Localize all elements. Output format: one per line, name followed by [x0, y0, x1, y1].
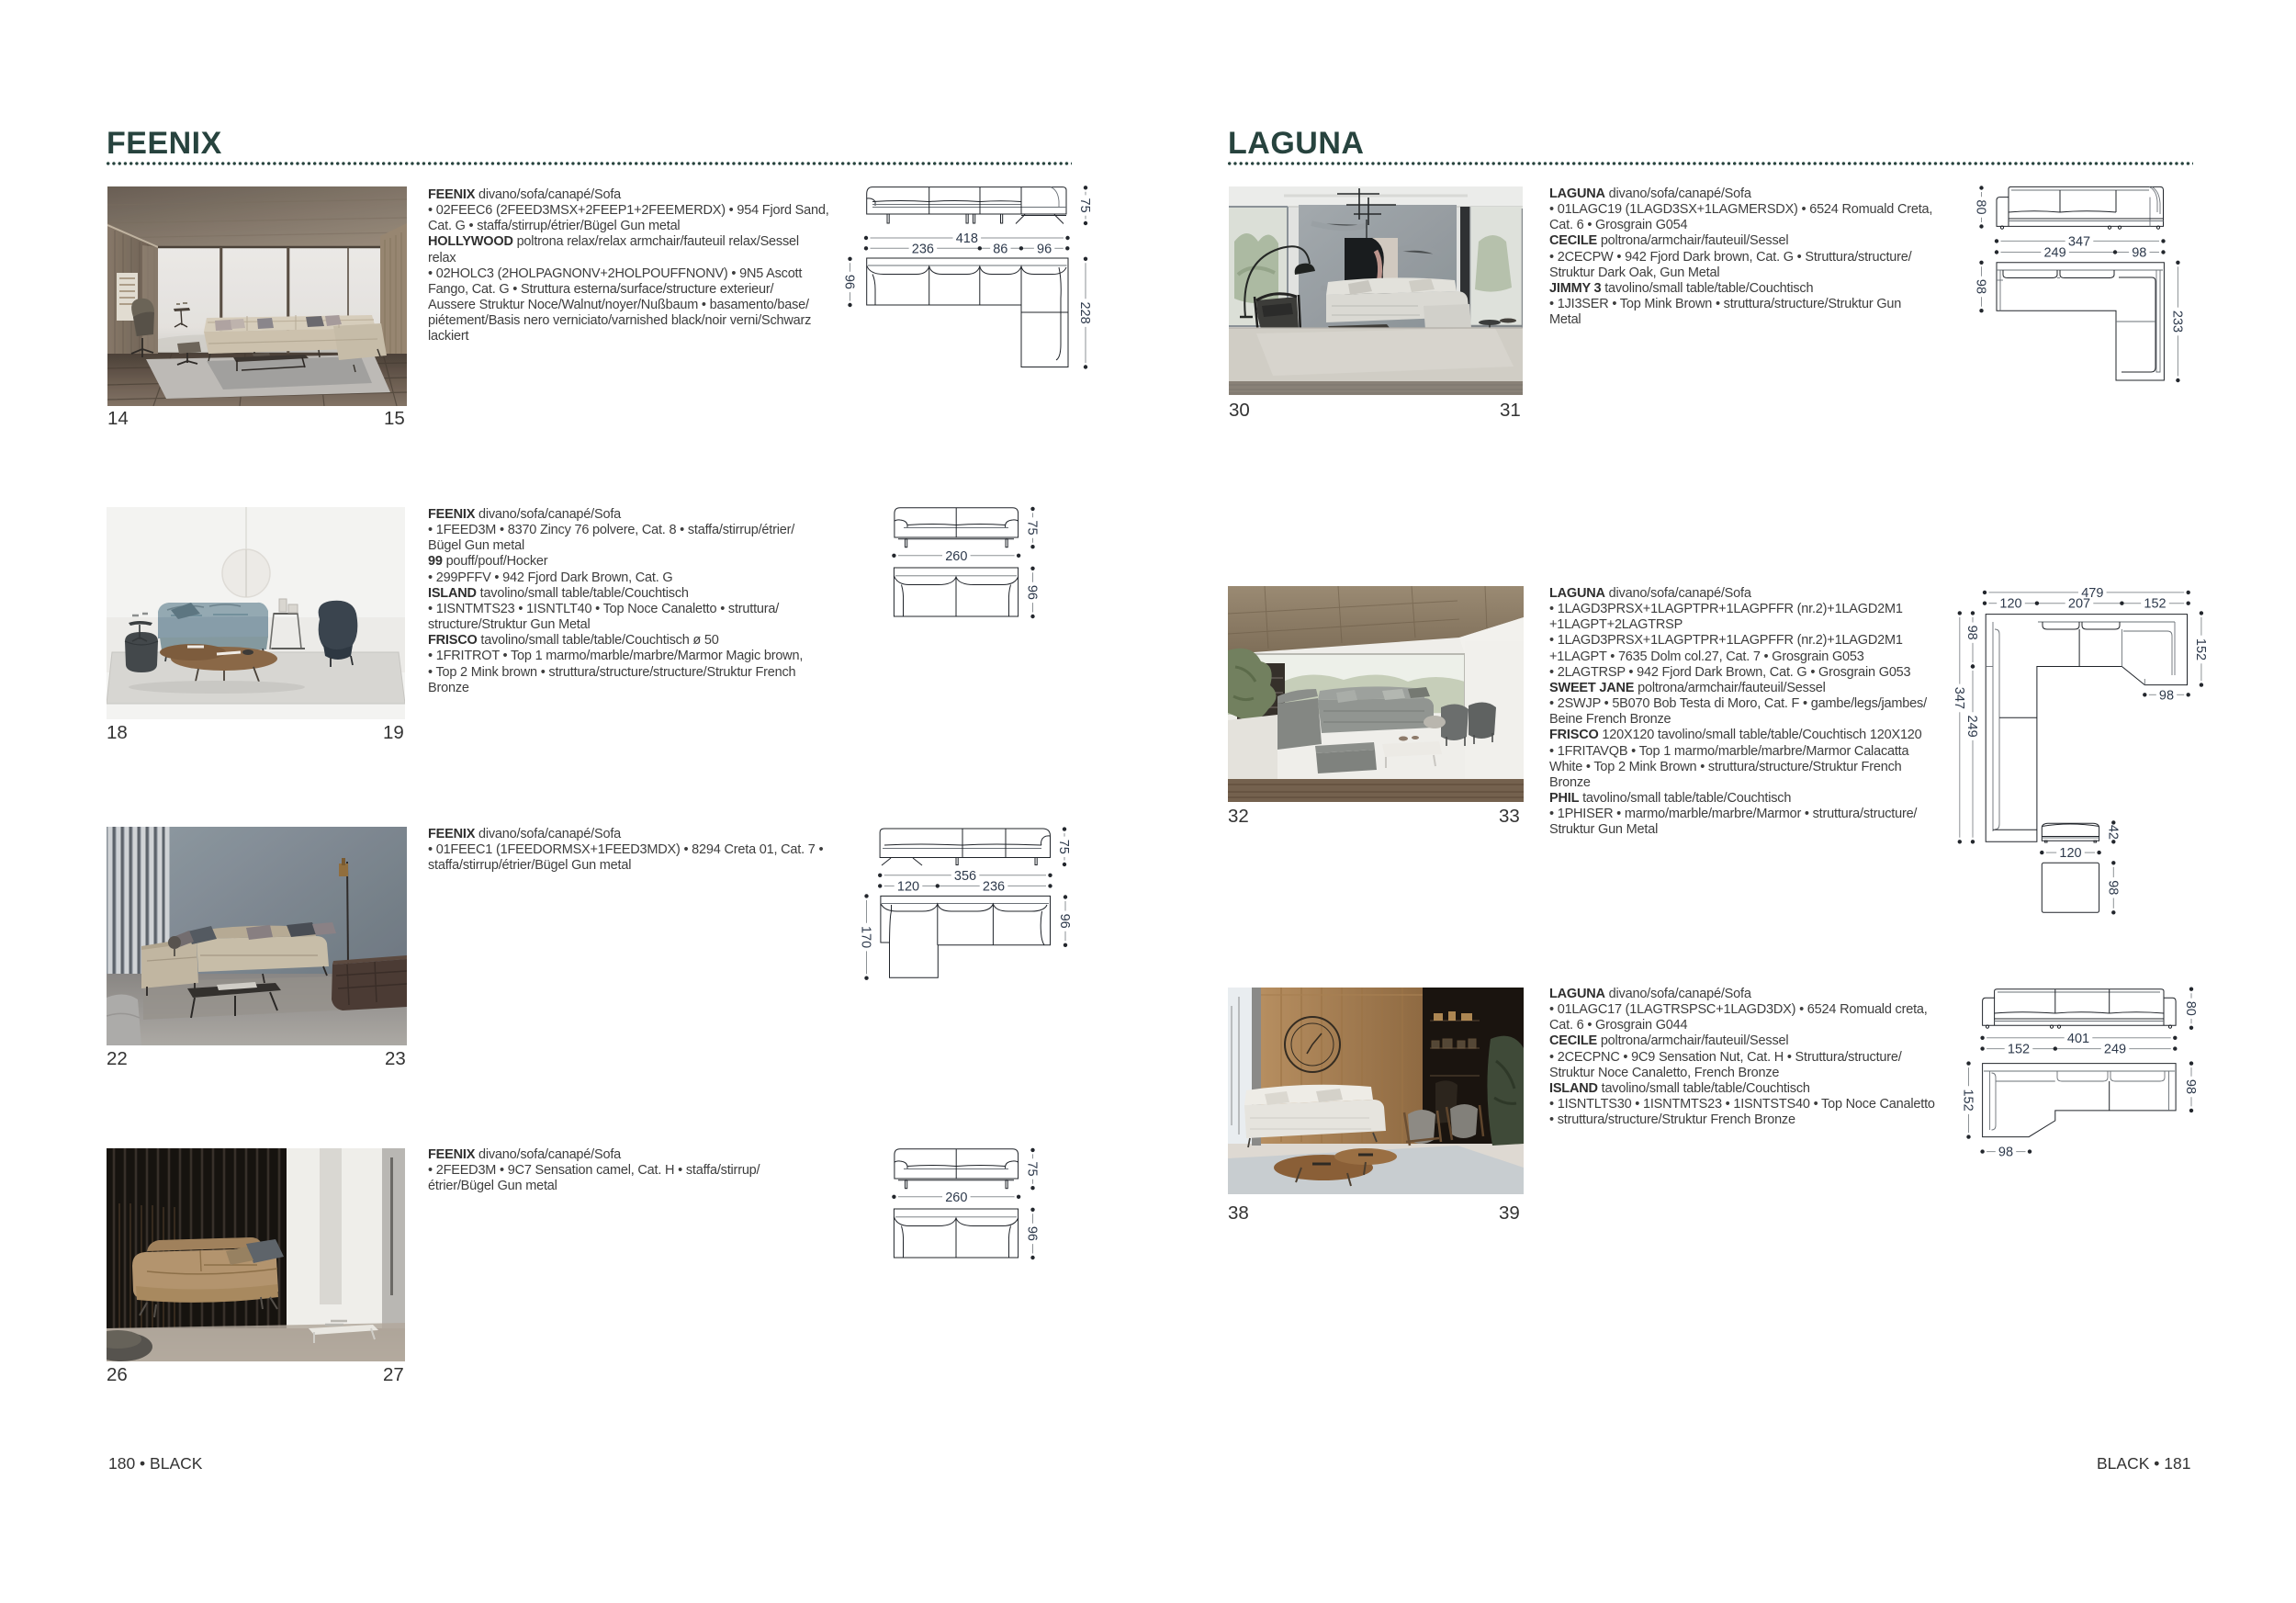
- svg-text:80: 80: [1974, 199, 1988, 214]
- svg-text:236: 236: [983, 879, 1005, 894]
- svg-text:152: 152: [2144, 597, 2166, 612]
- svg-text:75: 75: [1025, 520, 1040, 535]
- svg-text:98: 98: [2132, 246, 2146, 261]
- svg-text:80: 80: [2183, 1001, 2198, 1016]
- svg-text:120: 120: [1999, 597, 2021, 612]
- svg-text:260: 260: [945, 1191, 967, 1205]
- svg-text:249: 249: [2043, 246, 2065, 261]
- svg-text:98: 98: [2183, 1079, 2198, 1094]
- svg-text:347: 347: [1952, 687, 1966, 709]
- svg-text:86: 86: [993, 242, 1007, 256]
- svg-text:356: 356: [954, 869, 976, 884]
- svg-text:96: 96: [1025, 1226, 1040, 1241]
- svg-text:233: 233: [2170, 310, 2185, 333]
- svg-text:228: 228: [1077, 301, 1092, 323]
- svg-text:75: 75: [1056, 840, 1071, 854]
- svg-text:347: 347: [2068, 234, 2090, 249]
- svg-text:152: 152: [2193, 638, 2208, 660]
- svg-text:152: 152: [2008, 1043, 2030, 1057]
- svg-text:98: 98: [1974, 279, 1988, 294]
- svg-text:96: 96: [1037, 242, 1052, 256]
- svg-text:96: 96: [1025, 585, 1040, 600]
- svg-text:98: 98: [2159, 688, 2174, 703]
- svg-text:249: 249: [2104, 1043, 2126, 1057]
- svg-text:96: 96: [1057, 914, 1072, 929]
- svg-text:42: 42: [2105, 825, 2120, 840]
- svg-text:207: 207: [2068, 597, 2090, 612]
- svg-text:96: 96: [845, 275, 857, 289]
- svg-text:75: 75: [1077, 198, 1092, 213]
- svg-text:98: 98: [1998, 1146, 2013, 1160]
- svg-text:401: 401: [2067, 1032, 2089, 1046]
- svg-text:98: 98: [2105, 880, 2120, 895]
- svg-text:120: 120: [897, 879, 919, 894]
- svg-text:120: 120: [2059, 846, 2081, 861]
- svg-text:260: 260: [945, 549, 967, 564]
- svg-text:236: 236: [912, 242, 934, 256]
- svg-text:170: 170: [859, 926, 873, 948]
- svg-text:418: 418: [956, 231, 978, 246]
- svg-text:152: 152: [1961, 1089, 1975, 1111]
- svg-text:75: 75: [1025, 1161, 1040, 1176]
- svg-text:249: 249: [1964, 715, 1979, 737]
- svg-text:98: 98: [1964, 626, 1979, 640]
